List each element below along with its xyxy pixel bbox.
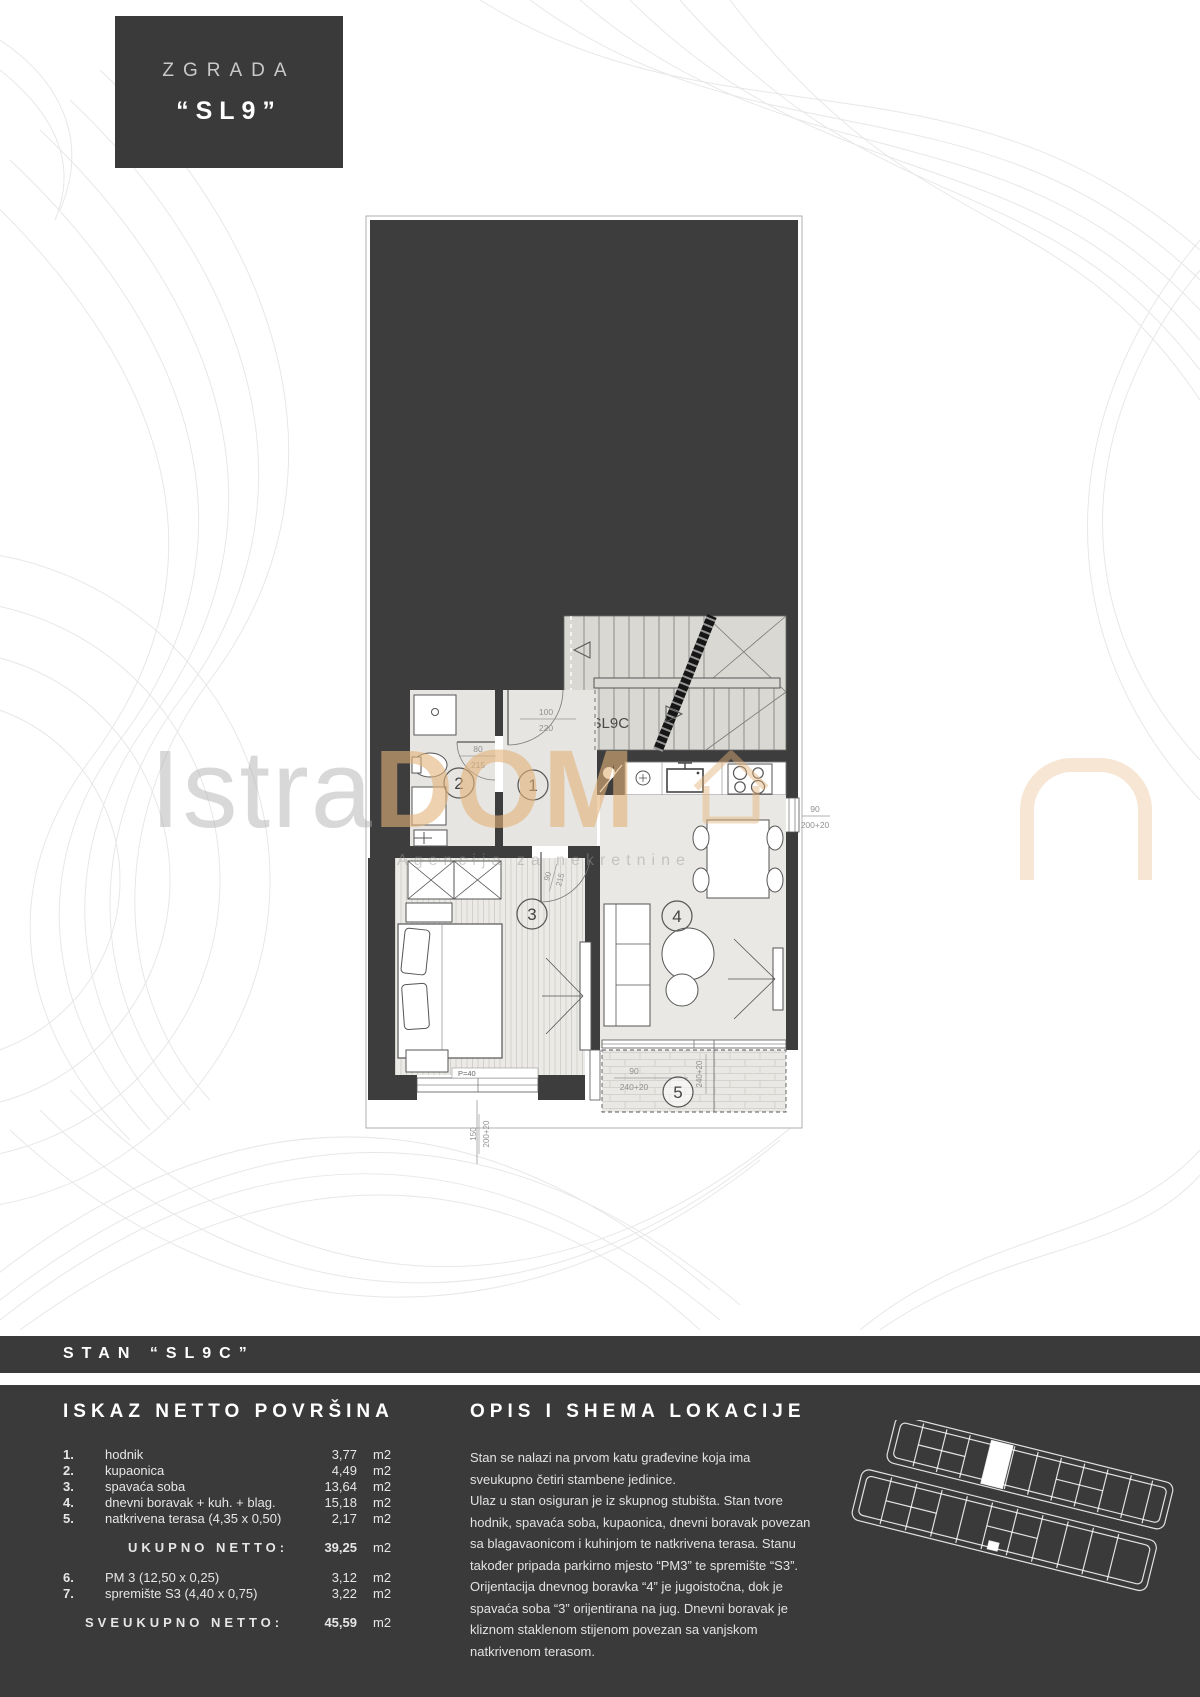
coffee-table-icon bbox=[662, 928, 714, 980]
table-row: 2.kupaonica4,49m2 bbox=[63, 1463, 433, 1479]
nightstand-icon bbox=[406, 1050, 448, 1072]
table-row: 1.hodnik3,77m2 bbox=[63, 1447, 433, 1463]
svg-text:80: 80 bbox=[473, 744, 483, 754]
netto-areas-section: ISKAZ NETTO POVRŠINA 1.hodnik3,77m2 2.ku… bbox=[63, 1401, 433, 1631]
table-row: 3.spavaća soba13,64m2 bbox=[63, 1479, 433, 1495]
bedroom bbox=[395, 858, 585, 1075]
room-2-badge: 2 bbox=[454, 774, 463, 793]
site-highlighted-unit bbox=[981, 1440, 1013, 1488]
building-title-box: ZGRADA “SL9” bbox=[115, 16, 343, 168]
svg-text:100: 100 bbox=[539, 707, 553, 717]
sofa-icon bbox=[604, 904, 650, 1026]
page: { "title_box": { "line1": "ZGRADA", "lin… bbox=[0, 0, 1200, 1697]
subtotal-row: UKUPNO NETTO:39,25m2 bbox=[63, 1540, 433, 1556]
svg-text:90: 90 bbox=[810, 804, 820, 814]
watermark-tagline: Agencija za nekretnine bbox=[397, 852, 691, 870]
description-paragraph: Stan se nalazi na prvom katu građevine k… bbox=[470, 1447, 815, 1490]
svg-text:240+20: 240+20 bbox=[695, 1060, 704, 1087]
dim-kitchen-window: 90 200+20 bbox=[801, 804, 830, 830]
building-code: “SL9” bbox=[115, 97, 343, 126]
netto-heading: ISKAZ NETTO POVRŠINA bbox=[63, 1401, 433, 1423]
kitchen-window bbox=[785, 798, 799, 832]
site-plan-schematic bbox=[845, 1420, 1181, 1660]
floor-plan: ◁SL9C 80 215 100 220 bbox=[362, 212, 832, 1182]
svg-text:200+20: 200+20 bbox=[482, 1120, 491, 1147]
parapet-label: P=40 bbox=[458, 1069, 476, 1078]
total-row: SVEUKUPNO NETTO:45,59m2 bbox=[63, 1615, 433, 1631]
room-3-badge: 3 bbox=[527, 905, 536, 924]
living-room bbox=[600, 795, 786, 1048]
description-section: OPIS I SHEMA LOKACIJE Stan se nalazi na … bbox=[470, 1401, 815, 1662]
dining-table-icon bbox=[707, 820, 769, 898]
description-text: Stan se nalazi na prvom katu građevine k… bbox=[470, 1447, 815, 1662]
building-label: ZGRADA bbox=[115, 60, 343, 82]
svg-text:220: 220 bbox=[539, 723, 553, 733]
netto-table: 1.hodnik3,77m2 2.kupaonica4,49m2 3.spava… bbox=[63, 1447, 433, 1631]
nightstand-icon bbox=[406, 903, 452, 922]
svg-text:215: 215 bbox=[471, 760, 485, 770]
sliding-glass-wall bbox=[602, 1040, 786, 1048]
description-paragraph: Ulaz u stan osiguran je iz skupnog stubi… bbox=[470, 1490, 815, 1662]
table-row: 5.natkrivena terasa (4,35 x 0,50)2,17m2 bbox=[63, 1511, 433, 1527]
table-row: 7.spremište S3 (4,40 x 0,75)3,22m2 bbox=[63, 1586, 433, 1602]
svg-text:150: 150 bbox=[469, 1127, 478, 1141]
unit-title: STAN “SL9C” bbox=[63, 1345, 1200, 1363]
svg-text:90: 90 bbox=[629, 1066, 639, 1076]
description-heading: OPIS I SHEMA LOKACIJE bbox=[470, 1401, 815, 1423]
svg-text:200+20: 200+20 bbox=[801, 820, 830, 830]
watermark-arch-shape bbox=[1020, 758, 1152, 880]
shower-icon bbox=[412, 787, 446, 825]
watermark-house-icon bbox=[688, 742, 774, 828]
table-row: 6.PM 3 (12,50 x 0,25)3,12m2 bbox=[63, 1570, 433, 1586]
site-building-upper bbox=[885, 1420, 1174, 1531]
svg-text:240+20: 240+20 bbox=[620, 1082, 649, 1092]
table-row: 4.dnevni boravak + kuh. + blag.15,18m2 bbox=[63, 1495, 433, 1511]
unit-title-band: STAN “SL9C” bbox=[0, 1336, 1200, 1373]
room-5-badge: 5 bbox=[673, 1083, 682, 1102]
room-1-badge: 1 bbox=[528, 776, 537, 795]
room-4-badge: 4 bbox=[672, 907, 681, 926]
